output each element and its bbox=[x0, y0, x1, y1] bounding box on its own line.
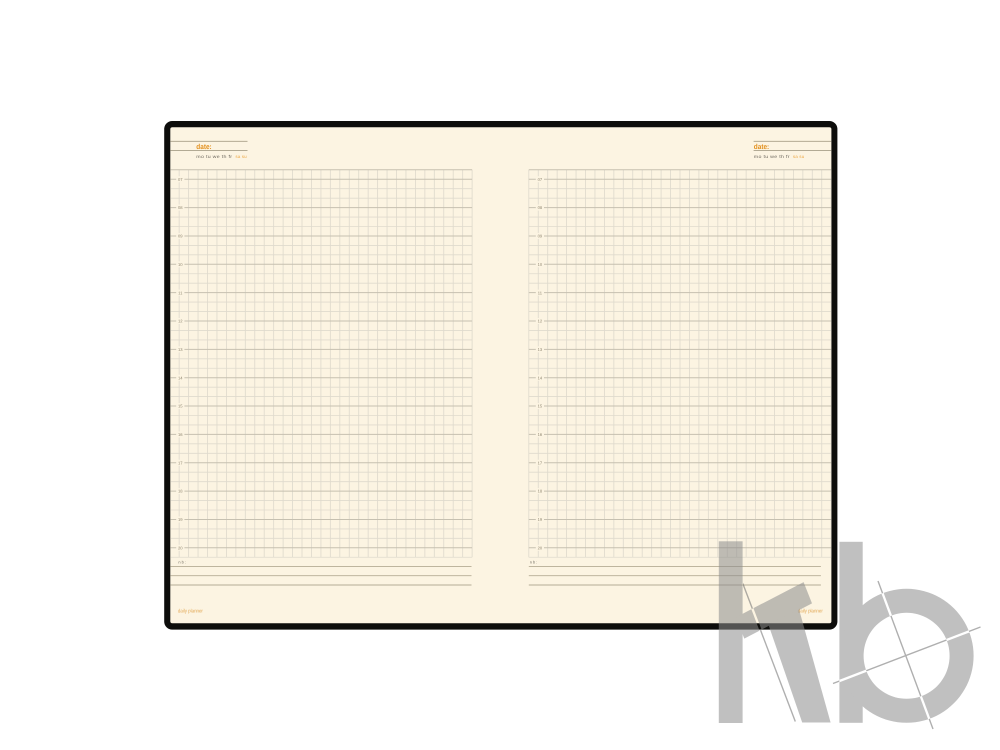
svg-text:11: 11 bbox=[538, 290, 543, 295]
svg-text:19: 19 bbox=[538, 517, 543, 522]
svg-text:15: 15 bbox=[178, 404, 183, 409]
svg-text:10: 10 bbox=[178, 262, 183, 267]
svg-text:14: 14 bbox=[538, 375, 543, 380]
svg-text:19: 19 bbox=[178, 517, 183, 522]
svg-text:16: 16 bbox=[538, 432, 543, 437]
svg-text:07: 07 bbox=[538, 177, 543, 182]
svg-text:09: 09 bbox=[178, 234, 183, 239]
svg-text:17: 17 bbox=[538, 460, 543, 465]
svg-text:17: 17 bbox=[178, 460, 183, 465]
svg-text:sa su: sa su bbox=[793, 154, 805, 159]
svg-text:mo tu we th fr: mo tu we th fr bbox=[754, 154, 790, 159]
svg-text:15: 15 bbox=[538, 404, 543, 409]
svg-text:12: 12 bbox=[178, 319, 183, 324]
svg-text:sa su: sa su bbox=[236, 154, 248, 159]
svg-text:date:: date: bbox=[196, 142, 211, 151]
svg-text:11: 11 bbox=[178, 290, 183, 295]
svg-text:09: 09 bbox=[538, 234, 543, 239]
svg-text:10: 10 bbox=[538, 262, 543, 267]
svg-text:daily planner: daily planner bbox=[798, 608, 823, 614]
svg-text:16: 16 bbox=[178, 432, 183, 437]
svg-text:07: 07 bbox=[178, 177, 183, 182]
svg-text:n b :: n b : bbox=[178, 560, 186, 565]
svg-text:date:: date: bbox=[754, 142, 769, 151]
svg-text:mo tu we th fr: mo tu we th fr bbox=[196, 154, 232, 159]
svg-text:14: 14 bbox=[178, 375, 183, 380]
svg-text:13: 13 bbox=[538, 347, 543, 352]
svg-text:20: 20 bbox=[538, 545, 543, 550]
svg-text:20: 20 bbox=[178, 545, 183, 550]
svg-text:08: 08 bbox=[538, 205, 543, 210]
svg-text:18: 18 bbox=[178, 489, 183, 494]
svg-text:18: 18 bbox=[538, 489, 543, 494]
svg-text:13: 13 bbox=[178, 347, 183, 352]
svg-text:daily planner: daily planner bbox=[178, 608, 203, 614]
svg-text:12: 12 bbox=[538, 319, 543, 324]
svg-text:08: 08 bbox=[178, 205, 183, 210]
svg-text:n b :: n b : bbox=[530, 560, 538, 565]
